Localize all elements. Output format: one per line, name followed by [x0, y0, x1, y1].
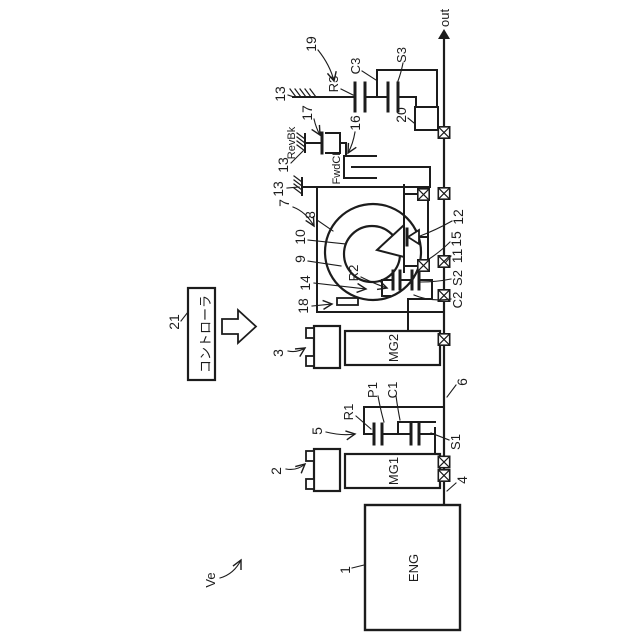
powertrain-diagram: out Ve 1 ENG 2 MG1 3 MG2 4 6 5 R1 P1 C1 … [0, 0, 640, 640]
revbk-label: RevBk [286, 126, 298, 159]
mg2-mount-tab [306, 328, 314, 338]
ref-1: 1 [337, 566, 353, 574]
ref-5: 5 [309, 427, 325, 435]
mg2-label: MG2 [386, 334, 401, 362]
label-s2: S2 [450, 270, 465, 286]
ref-18: 18 [295, 298, 311, 314]
ref-13-case: 13 [272, 86, 288, 102]
pump-box [415, 107, 438, 130]
ref-13-case: 13 [270, 181, 286, 197]
ref-17: 17 [299, 105, 315, 121]
label-r3: R3 [326, 76, 341, 93]
bearing-icon [438, 256, 449, 267]
label-p1: P1 [365, 382, 380, 398]
label-s3: S3 [394, 47, 409, 63]
fwdcl-label: FwdCL [331, 150, 343, 185]
mg1-mount-tab [306, 479, 314, 489]
ref-20: 20 [393, 107, 409, 123]
label-r2: R2 [346, 265, 361, 282]
ref-2: 2 [268, 467, 284, 475]
ref-16: 16 [347, 115, 363, 131]
mg1-mount-tab [306, 451, 314, 461]
label-c1: C1 [385, 382, 400, 399]
ref-14: 14 [297, 275, 313, 291]
bearing-icon [438, 188, 449, 199]
label-s1: S1 [448, 434, 463, 450]
mg2-mount-tab [306, 356, 314, 366]
engine-label: ENG [406, 554, 421, 582]
ref-9: 9 [292, 255, 308, 263]
ref-8: 8 [302, 211, 318, 219]
ref-15: 15 [448, 231, 464, 247]
bearing-icon [418, 260, 429, 271]
bearing-icon [418, 189, 429, 200]
bearing-icon [438, 127, 449, 138]
ref-7: 7 [276, 199, 292, 207]
out-label: out [437, 9, 452, 27]
ref-11: 11 [449, 249, 465, 264]
label-r1: R1 [341, 404, 356, 421]
mg2-stator [314, 326, 340, 368]
ref-3: 3 [270, 349, 286, 357]
label-c3: C3 [348, 58, 363, 75]
label-c2: C2 [450, 292, 465, 309]
ref-12: 12 [450, 209, 466, 225]
mg1-label: MG1 [386, 457, 401, 485]
ref-4: 4 [454, 476, 470, 484]
ref-19: 19 [303, 36, 319, 52]
controller-label: コントローラ [198, 295, 213, 373]
bearing-icon [438, 334, 449, 345]
patent-figure-page: out Ve 1 ENG 2 MG1 3 MG2 4 6 5 R1 P1 C1 … [0, 0, 640, 640]
motor-generator-1 [306, 449, 440, 491]
vehicle-label: Ve [203, 572, 218, 587]
bearing-icon [438, 456, 449, 467]
press-member [337, 298, 358, 305]
ref-6: 6 [454, 378, 470, 386]
ref-10: 10 [292, 229, 308, 245]
bearing-icon [438, 470, 449, 481]
motor-generator-2 [306, 326, 440, 368]
mg1-stator [314, 449, 340, 491]
ref-21: 21 [166, 314, 182, 330]
